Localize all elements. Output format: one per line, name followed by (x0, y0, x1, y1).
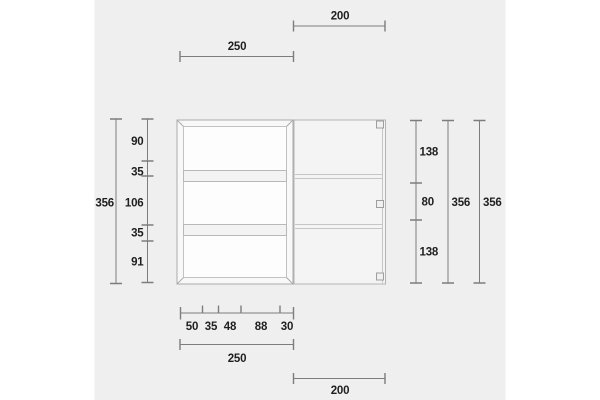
glass-door (294, 120, 386, 284)
dim-label-bottom-cabinet-width: 250 (228, 353, 247, 365)
dim-label-right-seg-1: 80 (422, 197, 434, 209)
dim-label-left-seg-1: 35 (131, 167, 144, 179)
dim-label-left-seg-3: 35 (131, 228, 144, 240)
dim-label-left-seg-2: 106 (125, 198, 144, 210)
dim-label-bottom-seg-3: 88 (255, 321, 268, 333)
dim-label-bottom-door-width: 200 (331, 385, 350, 397)
dim-label-right-seg-0: 138 (420, 147, 439, 159)
cabinet-unit (177, 120, 293, 284)
dim-label-bottom-seg-2: 48 (224, 321, 237, 333)
shelf-upper (184, 171, 287, 182)
dim-label-bottom-seg-0: 50 (186, 321, 198, 333)
hinge-bottom (377, 273, 384, 280)
dim-label-left-seg-0: 90 (131, 136, 143, 148)
dim-label-top-door-width: 200 (331, 11, 350, 23)
dim-label-bottom-seg-4: 30 (281, 321, 293, 333)
hinge-top (377, 121, 384, 128)
dim-label-right-total-height: 356 (483, 197, 502, 209)
cabinet-interior (184, 127, 287, 278)
dim-label-left-total-height: 356 (95, 198, 114, 210)
hinge-middle (377, 201, 384, 208)
shelf-lower (184, 225, 287, 236)
cabinet-dimension-drawing: 250 200 356 90 35 106 35 91 138 80 138 3… (0, 0, 600, 400)
dim-label-left-seg-4: 91 (131, 257, 144, 269)
dim-label-right-seg-2: 138 (420, 247, 439, 259)
dim-label-top-cabinet-width: 250 (228, 41, 247, 53)
door-panel (294, 120, 386, 284)
dim-label-bottom-seg-1: 35 (205, 321, 218, 333)
dim-label-right-door-height: 356 (452, 197, 471, 209)
